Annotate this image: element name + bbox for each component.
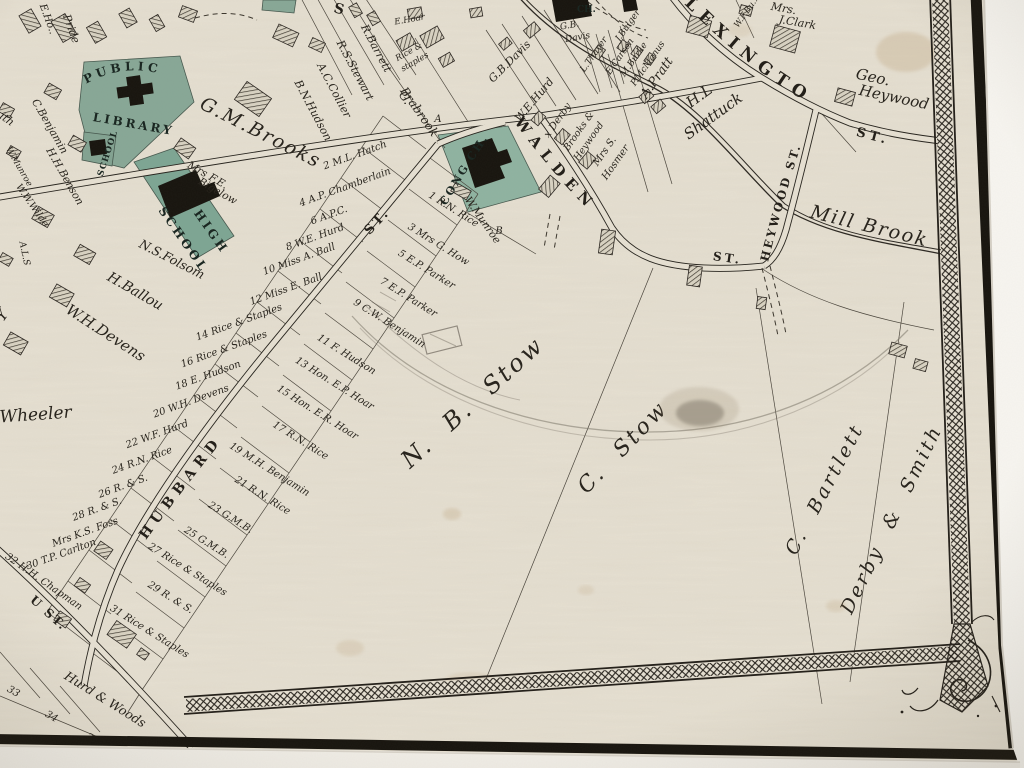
photo-vignette [0,0,1024,768]
atlas-map: LEXINGTON ST. WALDEN ST. HEYWOOD ST. HUB… [0,0,1024,768]
map-photo: LEXINGTON ST. WALDEN ST. HEYWOOD ST. HUB… [0,0,1024,768]
